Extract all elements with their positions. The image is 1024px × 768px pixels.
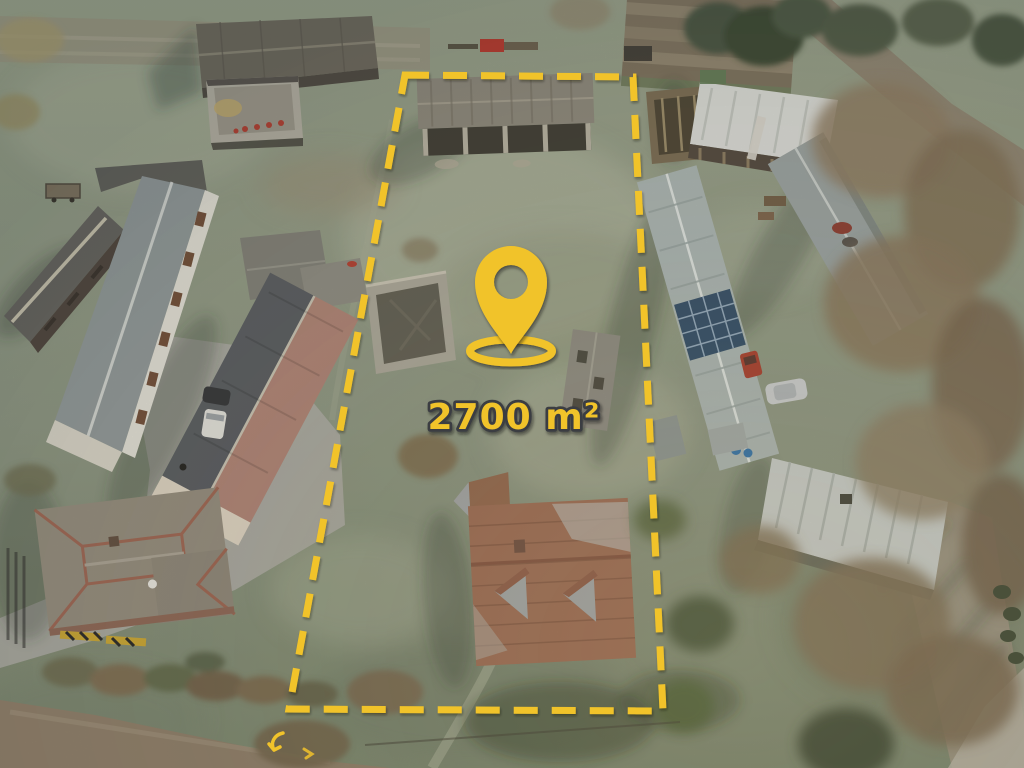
photo-grain xyxy=(0,0,1024,768)
plot-area-label: 2700 m² xyxy=(427,397,600,438)
aerial-photo-viewport: 2700 m² xyxy=(0,0,1024,768)
aerial-photo: 2700 m² xyxy=(0,0,1024,768)
